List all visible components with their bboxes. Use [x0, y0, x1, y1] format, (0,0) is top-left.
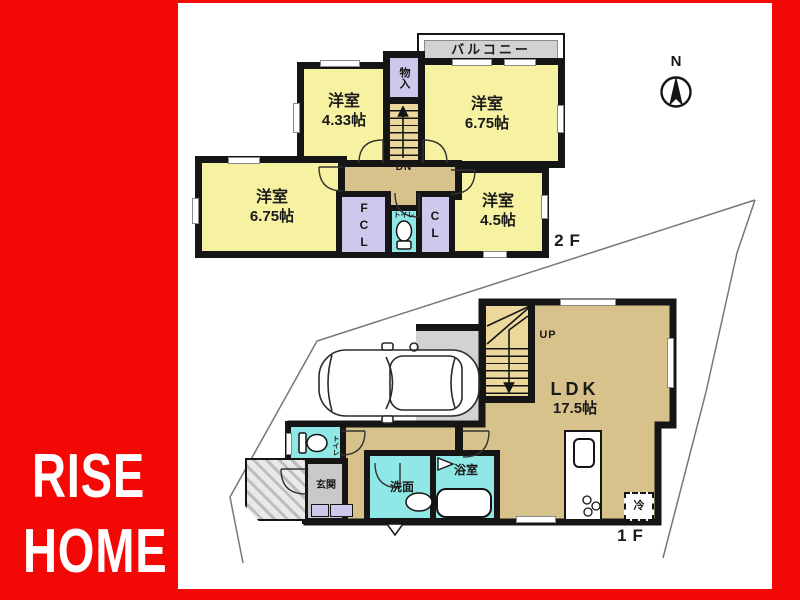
- fcl-label: FCL: [353, 204, 375, 248]
- room-size: 4.33帖: [322, 112, 366, 129]
- shoe-cabinet: [330, 504, 353, 517]
- washroom-label: 洗面: [381, 481, 423, 495]
- window: [320, 60, 360, 67]
- flyer-canvas: バルコニー 冷: [0, 0, 800, 600]
- bedroom-b-label: 洋室 6.75帖: [432, 91, 542, 137]
- floor2-label: 2F: [550, 232, 590, 250]
- bedroom-c-label: 洋室 6.75帖: [217, 184, 327, 230]
- parking-slab: [416, 324, 486, 428]
- entrance-label: 玄関: [308, 479, 344, 493]
- window: [286, 433, 292, 455]
- room-name: LDK: [551, 379, 600, 400]
- room-size: 4.5帖: [480, 212, 516, 229]
- stairs-down-label: DN: [389, 161, 419, 174]
- toilet-1f-label: トイレ: [329, 427, 341, 463]
- stairs-1f-treads: [486, 342, 528, 396]
- brand-line1: RISE: [32, 446, 145, 508]
- floor1-label: 1F: [613, 527, 653, 545]
- window: [192, 198, 199, 224]
- room-size: 6.75帖: [250, 208, 294, 225]
- room-size: 17.5帖: [553, 400, 597, 417]
- window: [667, 338, 674, 388]
- refrigerator: 冷: [624, 492, 654, 521]
- window: [483, 251, 507, 258]
- window: [557, 105, 564, 133]
- room-name: 洋室: [328, 93, 360, 111]
- balcony-label: バルコニー: [451, 43, 531, 58]
- window: [452, 59, 492, 66]
- bedroom-a-label: 洋室 4.33帖: [302, 89, 386, 133]
- window: [228, 157, 260, 164]
- bedroom-d-label: 洋室 4.5帖: [452, 189, 544, 233]
- north-label: N: [666, 53, 686, 70]
- ldk-label: LDK 17.5帖: [528, 377, 622, 419]
- cl-label: CL: [424, 208, 446, 244]
- stairs-up-label: UP: [535, 328, 561, 342]
- room-name: 洋室: [256, 189, 288, 207]
- bathroom-label: 浴室: [444, 464, 488, 478]
- brand-line2: HOME: [23, 521, 167, 583]
- bathroom: [430, 450, 500, 524]
- window: [293, 103, 300, 133]
- entrance-porch: [245, 458, 307, 521]
- kitchen-sink: [573, 438, 595, 468]
- room-name: 洋室: [482, 193, 514, 211]
- wall-segment: [455, 427, 463, 455]
- window: [560, 299, 616, 306]
- room-size: 6.75帖: [465, 115, 509, 132]
- window: [516, 516, 556, 523]
- shoe-cabinet: [311, 504, 329, 517]
- storage-label: 物入: [394, 58, 414, 98]
- toilet-2f-label: トイレ: [390, 212, 418, 221]
- stairs-2f-treads: [390, 104, 418, 160]
- refrigerator-label: 冷: [634, 500, 645, 513]
- room-name: 洋室: [471, 96, 503, 114]
- window: [504, 59, 536, 66]
